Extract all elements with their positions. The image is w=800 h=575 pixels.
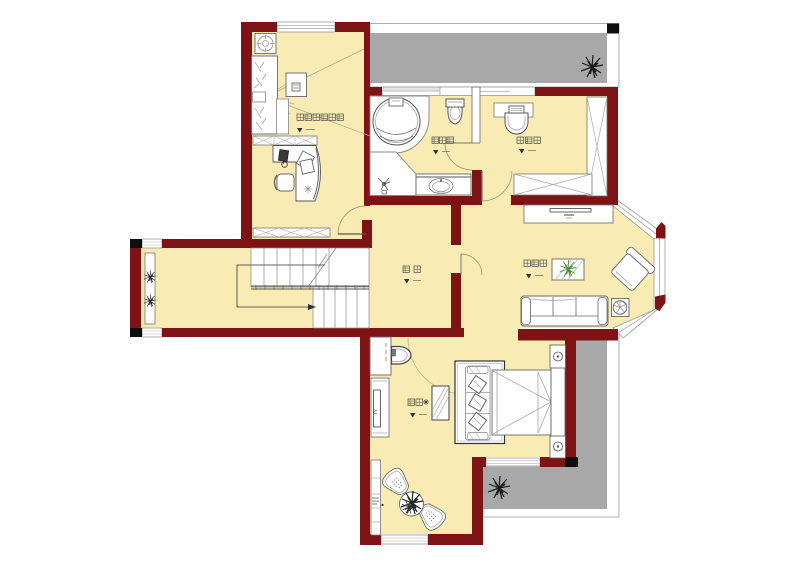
svg-text:TV: TV <box>373 408 379 415</box>
